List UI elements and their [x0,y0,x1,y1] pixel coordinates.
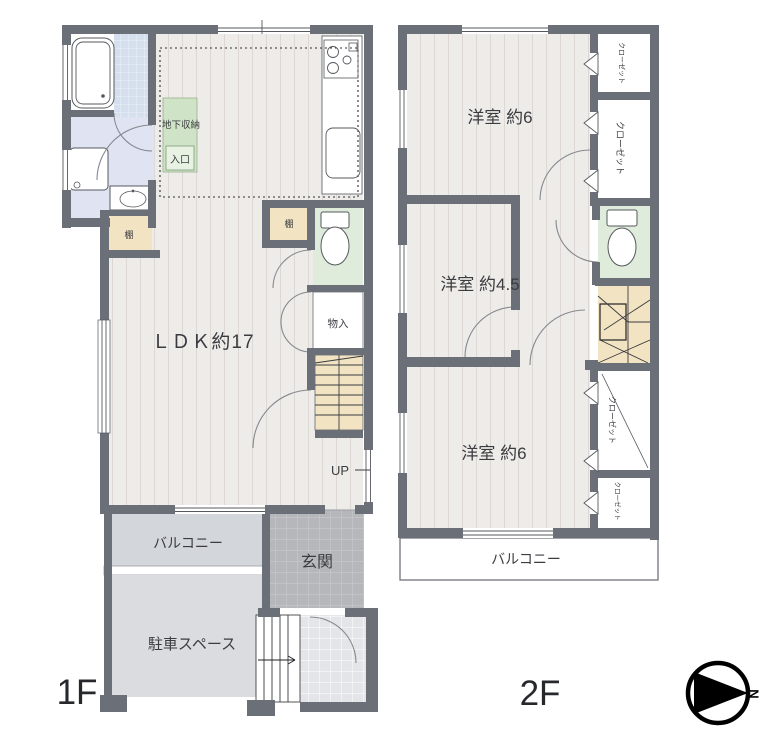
toilet-2f-bowl [608,228,636,266]
balcony-railing [104,566,266,575]
floorplan-svg: ＬＤＫ約17 地下収納 入口 棚 棚 物入 UP バルコニー 玄関 駐車スペース… [0,0,768,739]
toilet-1f-tank [321,212,349,228]
bathtub [72,38,114,108]
bedroom-middle-label: 洋室 約4.5 [440,275,519,294]
bathtub-drain [101,94,105,98]
basement-storage-label: 地下収納 [162,119,200,131]
stairs-up-label: UP [331,463,349,478]
bedroom-top-label: 洋室 約6 [467,108,532,127]
vanity-basin [120,191,146,207]
washing-machine [70,148,108,190]
storage-label: 物入 [328,317,349,330]
closet-lower-label: クローゼット [608,396,618,444]
bathroom-tile [114,29,152,117]
floor-2-plan: 洋室 約6 洋室 約4.5 洋室 約6 バルコニー クローゼット クローゼット … [397,25,659,713]
floor-1-title: 1F [57,673,98,712]
balcony-2f-label: バルコニー [491,551,561,567]
closet-bottom-label: クローゼット [614,482,623,521]
parking-label: 駐車スペース [148,636,236,653]
compass-rose: N [688,663,762,723]
bedroom-bottom-label: 洋室 約6 [461,444,526,463]
compass-north-label: N [747,689,762,698]
toilet-2f-tank [607,210,637,226]
genkan-label: 玄関 [301,553,333,571]
floor-1-plan: ＬＤＫ約17 地下収納 入口 棚 棚 物入 UP バルコニー 玄関 駐車スペース… [57,20,378,716]
floorplan-canvas: ＬＤＫ約17 地下収納 入口 棚 棚 物入 UP バルコニー 玄関 駐車スペース… [0,0,768,739]
balcony-1f-label: バルコニー [153,535,223,551]
floor-2-fixtures [607,210,637,266]
entry-steps [256,615,300,702]
ldk-label: ＬＤＫ約17 [151,331,254,353]
shelf-left-label: 棚 [124,229,133,240]
shelf-right-label: 棚 [284,218,293,229]
closet-top-label: クローゼット [618,42,627,84]
closet-upper-label: クローゼット [615,121,626,175]
floor-2-title: 2F [520,674,561,713]
vanity-tap [132,190,135,193]
toilet-1f-bowl [321,227,349,265]
basement-entrance-label: 入口 [170,155,190,166]
kitchen-counter [322,36,362,194]
